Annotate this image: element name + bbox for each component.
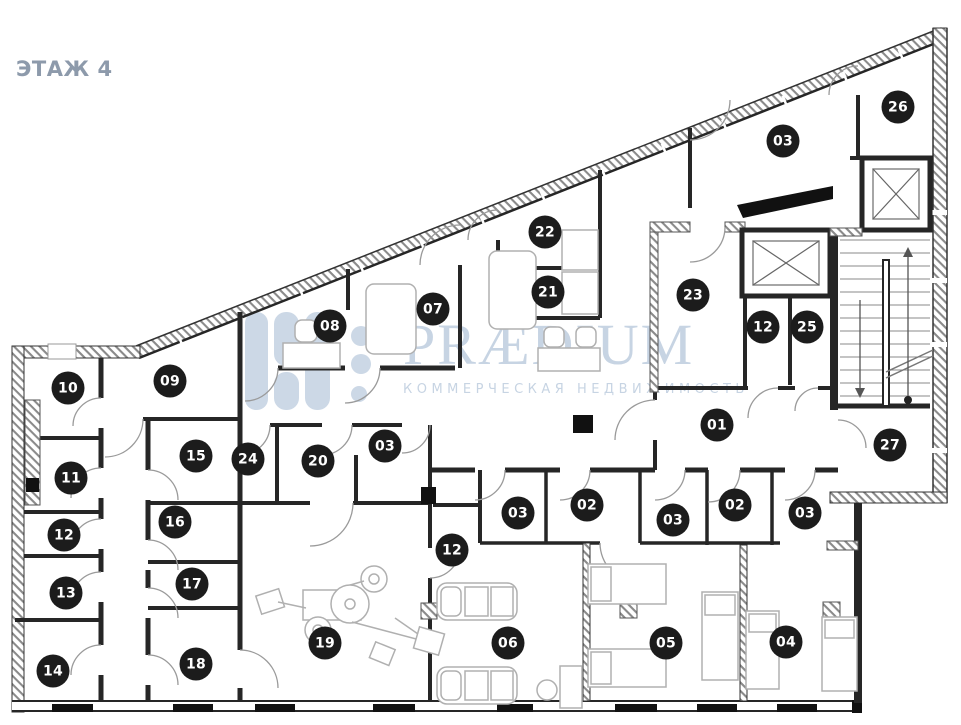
room-marker-06: 06 <box>492 627 525 660</box>
room-marker-12: 12 <box>747 311 780 344</box>
room-marker-10: 10 <box>52 372 85 405</box>
room-marker-23: 23 <box>677 279 710 312</box>
room-marker-02: 02 <box>571 489 604 522</box>
room-marker-12: 12 <box>48 519 81 552</box>
room-marker-22: 22 <box>529 216 562 249</box>
room-marker-12: 12 <box>436 534 469 567</box>
floorplan-page: ЭТАЖ 4 PRÆDIUM КОММЕРЧЕСКАЯ НЕДВИЖИМОСТЬ <box>0 0 961 725</box>
room-marker-01: 01 <box>701 409 734 442</box>
room-marker-19: 19 <box>309 627 342 660</box>
room-marker-03: 03 <box>767 125 800 158</box>
room-marker-16: 16 <box>159 506 192 539</box>
room-marker-17: 17 <box>176 568 209 601</box>
room-marker-18: 18 <box>180 648 213 681</box>
room-marker-27: 27 <box>874 429 907 462</box>
room-marker-08: 08 <box>314 310 347 343</box>
room-marker-25: 25 <box>791 311 824 344</box>
room-marker-03: 03 <box>657 504 690 537</box>
room-marker-05: 05 <box>650 627 683 660</box>
room-marker-04: 04 <box>770 626 803 659</box>
room-marker-21: 21 <box>532 276 565 309</box>
room-marker-24: 24 <box>232 443 265 476</box>
room-marker-02: 02 <box>719 489 752 522</box>
room-marker-03: 03 <box>369 430 402 463</box>
room-marker-20: 20 <box>302 445 335 478</box>
room-marker-15: 15 <box>180 440 213 473</box>
room-marker-26: 26 <box>882 91 915 124</box>
room-marker-11: 11 <box>55 462 88 495</box>
room-marker-03: 03 <box>502 497 535 530</box>
room-marker-13: 13 <box>50 577 83 610</box>
room-marker-09: 09 <box>154 365 187 398</box>
room-marker-03: 03 <box>789 497 822 530</box>
room-marker-14: 14 <box>37 655 70 688</box>
room-marker-07: 07 <box>417 293 450 326</box>
room-markers-layer: 2603222123070812250910012703152420110202… <box>0 0 961 725</box>
